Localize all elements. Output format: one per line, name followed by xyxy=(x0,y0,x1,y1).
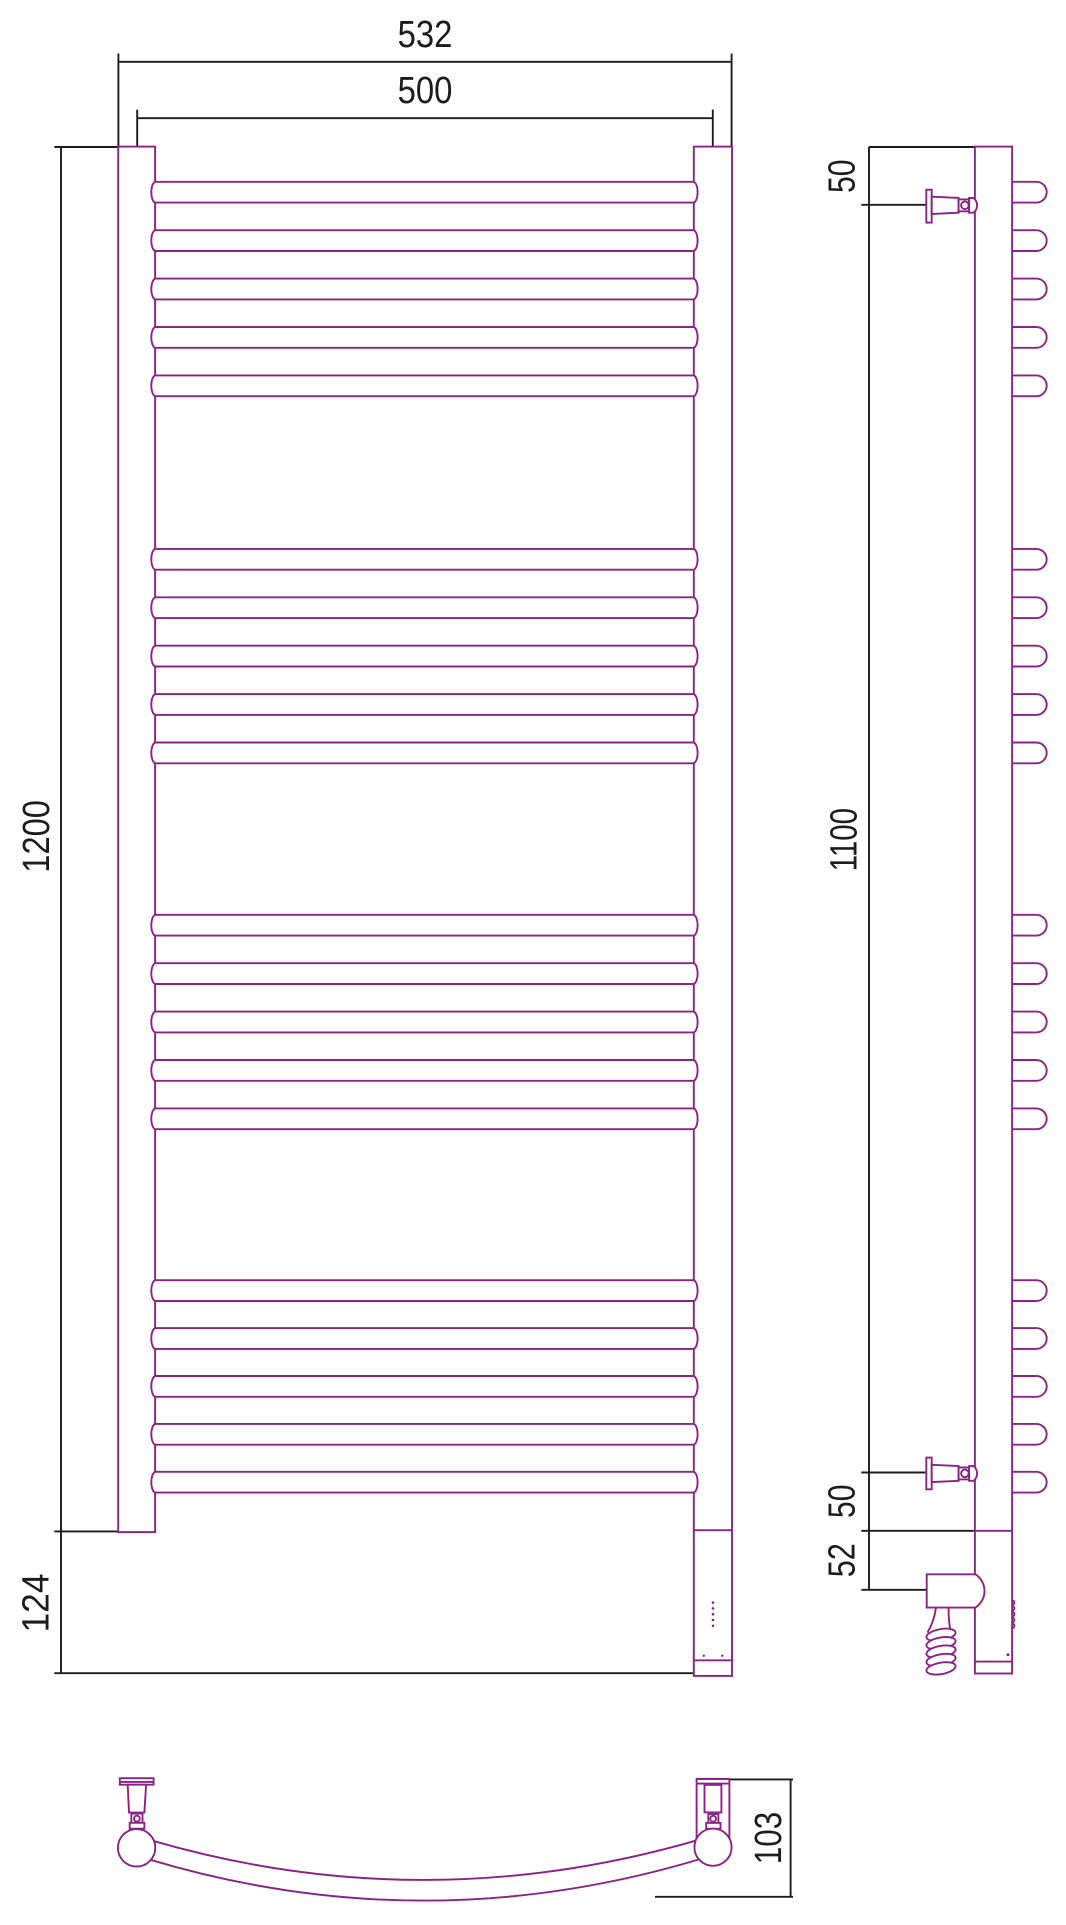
svg-text:50: 50 xyxy=(821,159,863,193)
svg-text:532: 532 xyxy=(398,14,453,56)
svg-text:500: 500 xyxy=(398,70,453,112)
svg-text:52: 52 xyxy=(821,1543,863,1577)
svg-text:1200: 1200 xyxy=(16,800,58,873)
svg-text:1100: 1100 xyxy=(823,808,865,871)
svg-text:50: 50 xyxy=(821,1485,863,1519)
svg-text:124: 124 xyxy=(15,1574,57,1633)
svg-text:103: 103 xyxy=(748,1812,790,1864)
